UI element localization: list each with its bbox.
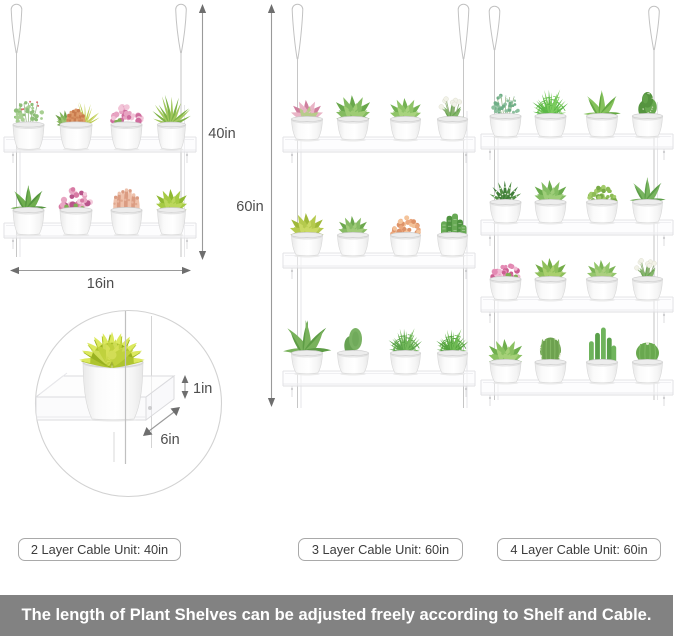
svg-text:60in: 60in xyxy=(236,199,263,215)
svg-text:1in: 1in xyxy=(193,381,212,397)
svg-text:40in: 40in xyxy=(208,126,235,142)
svg-text:16in: 16in xyxy=(87,276,114,292)
svg-text:6in: 6in xyxy=(160,432,179,448)
